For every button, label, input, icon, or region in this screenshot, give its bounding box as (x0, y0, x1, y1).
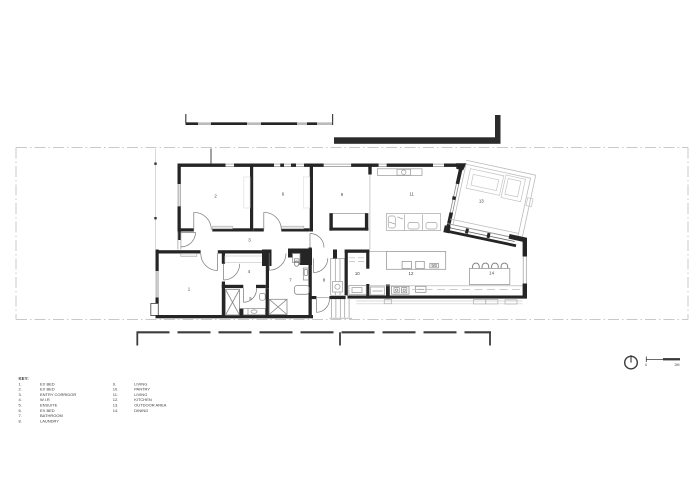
svg-text:LIVING: LIVING (134, 392, 147, 397)
svg-text:12.: 12. (113, 397, 119, 402)
svg-text:2.: 2. (19, 387, 22, 392)
svg-text:EX BED: EX BED (40, 408, 55, 413)
svg-text:14.: 14. (113, 408, 119, 413)
svg-text:PANTRY: PANTRY (134, 387, 150, 392)
svg-text:KEY:: KEY: (19, 376, 30, 381)
svg-text:3.: 3. (19, 392, 22, 397)
svg-text:DINING: DINING (134, 408, 148, 413)
svg-text:5.: 5. (19, 403, 22, 408)
svg-text:10.: 10. (113, 387, 119, 392)
svg-text:ENSUITE: ENSUITE (40, 403, 58, 408)
svg-text:11.: 11. (113, 392, 118, 397)
svg-text:BATHROOM: BATHROOM (40, 413, 63, 418)
svg-text:4.: 4. (19, 397, 22, 402)
svg-text:EX BED: EX BED (40, 387, 55, 392)
svg-text:KITCHEN: KITCHEN (134, 397, 152, 402)
svg-text:10: 10 (355, 271, 360, 276)
svg-text:LIVING: LIVING (134, 381, 147, 386)
svg-text:14: 14 (489, 270, 494, 275)
svg-text:ENTRY CORRIDOR: ENTRY CORRIDOR (40, 392, 76, 397)
svg-text:OUTDOOR AREA: OUTDOOR AREA (134, 403, 167, 408)
svg-text:11: 11 (409, 192, 414, 197)
svg-text:6.: 6. (19, 408, 22, 413)
svg-text:0: 0 (645, 363, 647, 367)
svg-text:W.I.R: W.I.R (40, 397, 50, 402)
svg-text:2M: 2M (675, 363, 680, 367)
svg-text:9.: 9. (113, 381, 116, 386)
svg-text:12: 12 (409, 271, 414, 276)
svg-text:LAUNDRY: LAUNDRY (40, 418, 59, 423)
svg-text:8.: 8. (19, 418, 22, 423)
svg-text:7.: 7. (19, 413, 22, 418)
svg-text:13: 13 (479, 198, 484, 203)
svg-text:EX BED: EX BED (40, 381, 55, 386)
svg-text:1.: 1. (19, 381, 22, 386)
svg-text:13.: 13. (113, 403, 119, 408)
